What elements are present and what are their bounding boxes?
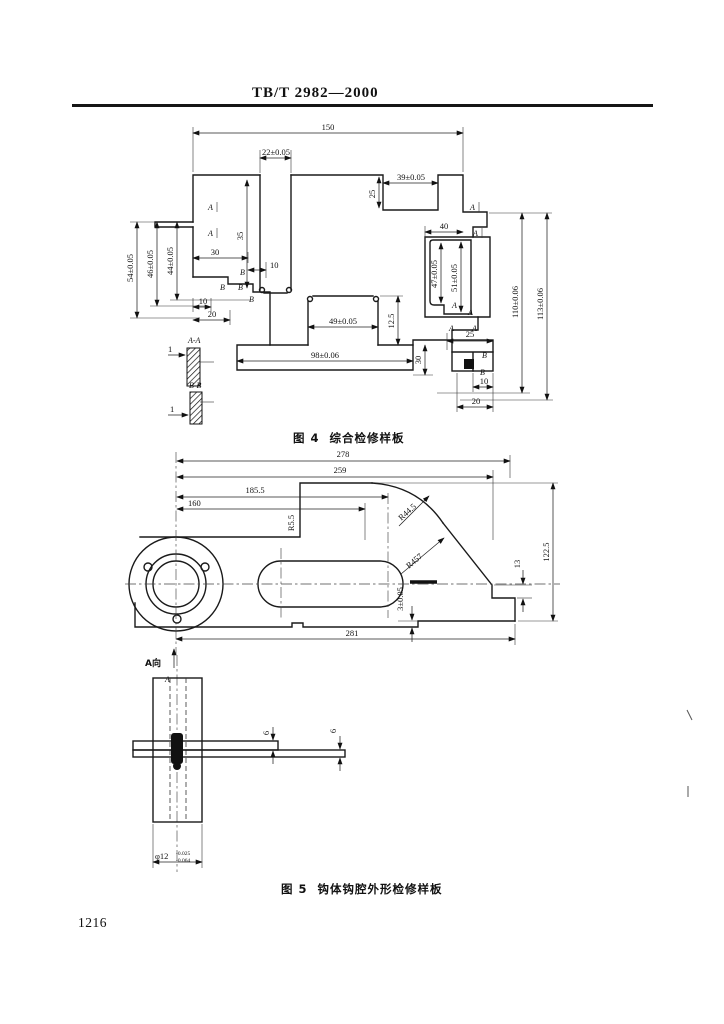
- dim-label: 278: [337, 449, 350, 459]
- dim-label: 54±0.05: [125, 254, 135, 282]
- section-label: A-A: [187, 336, 201, 345]
- boss-bolt-hole: [173, 615, 181, 623]
- radius-label: R5.5: [286, 515, 296, 531]
- document-page: TB/T 2982—2000: [0, 0, 724, 1024]
- boss-bolt-hole: [201, 563, 209, 571]
- dim-label: 1: [168, 344, 172, 354]
- dim-label: 281: [346, 628, 359, 638]
- dim-tolerance-upper: -0.025: [176, 851, 190, 857]
- dim-label: 49±0.05: [329, 316, 357, 326]
- section-mark-A: A: [164, 675, 170, 684]
- section-BB-bar: [190, 392, 202, 424]
- outline-arm-left: [155, 222, 193, 227]
- dim-label: 6: [261, 731, 271, 735]
- dim-label: 113±0.06: [535, 288, 545, 320]
- section-mark-A: A: [471, 324, 477, 333]
- dim-label: 20: [472, 396, 481, 406]
- outline-slot-22: [260, 175, 291, 293]
- scan-artifact: [687, 710, 692, 797]
- fastener-bolt: [171, 733, 183, 764]
- figure5-outline: [125, 452, 560, 655]
- dim-label: 47±0.05: [429, 260, 439, 288]
- dim-label: 12.5: [386, 314, 396, 329]
- dim-label: 22±0.05: [262, 147, 290, 157]
- dim-label: 39±0.05: [397, 172, 425, 182]
- section-mark-B: B: [220, 283, 225, 292]
- dim-label: 13: [512, 560, 522, 569]
- outline-nose: [443, 523, 515, 621]
- technical-drawings: A-A 1 B-B 1 150 22±0.05: [0, 0, 724, 1024]
- figure5-dimensions: 278 259 185.5 160 R5.5 R44.5 R457 13: [176, 449, 558, 645]
- dim-label: 1: [170, 404, 174, 414]
- section-mark-A: A: [469, 203, 475, 212]
- figure4-sections: A-A 1 B-B 1: [168, 336, 214, 424]
- dim-label: 98±0.06: [311, 350, 339, 360]
- section-mark-B: B: [249, 295, 254, 304]
- cross-bar-lower: [133, 750, 345, 757]
- figure4-caption: 图 4 综合检修样板: [293, 430, 405, 446]
- figure5-caption: 图 5 钩体钩腔外形检修样板: [281, 881, 443, 897]
- dim-label: 30: [211, 247, 220, 257]
- dim-label-phi: φ12: [155, 851, 168, 861]
- figure4-drawing: A-A 1 B-B 1 150 22±0.05: [125, 122, 553, 424]
- section-mark-B: B: [466, 360, 471, 369]
- dim-tolerance-lower: -0.064: [176, 858, 190, 864]
- dim-label: 40: [440, 221, 449, 231]
- dim-label: 122.5: [541, 542, 551, 561]
- section-mark-B: B: [480, 368, 485, 377]
- section-mark-B: B: [240, 268, 245, 277]
- dim-label: 44±0.05: [165, 247, 175, 275]
- section-mark-B: B: [482, 351, 487, 360]
- figure4-outline: [155, 175, 493, 371]
- dim-label: 51±0.05: [449, 264, 459, 292]
- dim-label: 160: [188, 498, 201, 508]
- fastener-bolt-end: [173, 762, 181, 770]
- view-label: A向: [145, 657, 161, 669]
- dim-label: 259: [334, 465, 347, 475]
- dim-label: 46±0.05: [145, 250, 155, 278]
- section-mark-A: A: [472, 229, 478, 238]
- figure5-viewA: A向 A 6 6 φ12 -0.025: [133, 649, 345, 872]
- section-mark-A: A: [448, 324, 454, 333]
- outline-top-left: [193, 175, 260, 277]
- section-label: B-B: [189, 381, 202, 390]
- dim-label: 10: [199, 296, 208, 306]
- cross-bar-upper: [133, 741, 278, 750]
- dim-label: 20: [208, 309, 217, 319]
- section-mark-A: A: [207, 229, 213, 238]
- slot-foot: [374, 297, 379, 302]
- dim-label: 185.5: [245, 485, 264, 495]
- figure5-drawing: 278 259 185.5 160 R5.5 R44.5 R457 13: [125, 449, 560, 872]
- dim-label: 6: [328, 729, 338, 733]
- dim-label: 35: [235, 232, 245, 241]
- section-mark-A: A: [207, 203, 213, 212]
- dim-label: 25: [367, 190, 377, 199]
- dim-label: 10: [480, 376, 489, 386]
- radius-label: R44.5: [396, 501, 418, 522]
- page-number: 1216: [78, 915, 107, 931]
- section-mark-A: A: [451, 301, 457, 310]
- dim-label: 150: [322, 122, 335, 132]
- radius-label: R457: [404, 551, 425, 571]
- dim-label: 30: [413, 356, 423, 365]
- dim-label: 3±0.05: [395, 587, 405, 611]
- section-mark-B: B: [238, 283, 243, 292]
- section-mark-A: A: [467, 308, 473, 317]
- dim-label: 10: [270, 260, 279, 270]
- slot-foot: [308, 297, 313, 302]
- dim-label: 110±0.06: [510, 286, 520, 318]
